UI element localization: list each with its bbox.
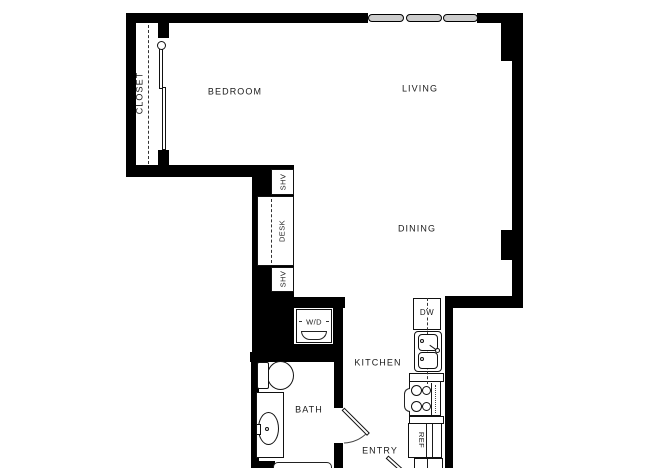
- entry-door-leaf: [386, 456, 407, 468]
- burner-front-left-icon: [411, 385, 422, 396]
- burner-back-right-icon: [422, 402, 431, 411]
- room-label-bedroom: BEDROOM: [208, 88, 262, 97]
- room-label-closet: CLOSET: [136, 72, 145, 115]
- oven-handle-icon: [404, 388, 410, 412]
- wall-kitchen-top: [445, 296, 523, 308]
- room-label-bath: BATH: [295, 406, 323, 415]
- room-label-entry: ENTRY: [362, 447, 398, 456]
- stove-panel-line: [431, 383, 432, 415]
- closet-rod-dashline: [148, 25, 149, 164]
- fridge-door-line-2: [432, 424, 433, 457]
- wall-bath-bottom-stub: [251, 461, 275, 468]
- room-label-kitchen: KITCHEN: [354, 359, 401, 368]
- cabinet-below-fridge: [414, 458, 443, 468]
- closet-slider-panel-2: [162, 87, 166, 150]
- window-segment-3: [443, 14, 478, 22]
- fridge-door-line-1: [426, 424, 427, 457]
- window-segment-2: [406, 14, 442, 22]
- desk-dashline: [271, 199, 272, 263]
- wall-bath-top: [250, 352, 343, 362]
- closet-door-knob-icon: [157, 41, 166, 50]
- burner-back-left-icon: [411, 401, 422, 412]
- room-label-living: LIVING: [402, 85, 438, 94]
- closet-door-stub-top: [158, 23, 169, 38]
- fixture-label-dishwasher: DW: [418, 309, 436, 317]
- pillar-dining: [501, 230, 513, 260]
- floor-plan: CLOSET BEDROOM LIVING DINING KITCHEN BAT…: [0, 0, 650, 468]
- burner-front-right-icon: [422, 386, 431, 395]
- fixture-label-shelf-upper: SHV: [279, 174, 287, 191]
- room-label-dining: DINING: [398, 225, 436, 234]
- vanity-faucet-icon: [256, 424, 261, 435]
- desk-box: [257, 196, 294, 266]
- fixture-label-washer-dryer: W/D: [304, 318, 324, 326]
- wall-kitchen-right: [445, 296, 453, 468]
- toilet-tank: [257, 362, 269, 389]
- stove-control-strip: [435, 385, 436, 413]
- wall-top-left: [126, 13, 368, 23]
- wall-right: [512, 23, 523, 308]
- cabinet-divider-line: [427, 459, 428, 468]
- fixture-label-desk: DESK: [278, 220, 286, 242]
- window-segment-1: [368, 14, 404, 22]
- vanity-drain-icon: [265, 427, 269, 431]
- basin-drain-1-icon: [420, 339, 424, 343]
- fixture-label-shelf-lower: SHV: [279, 271, 287, 288]
- wall-bedroom-bottom: [126, 165, 272, 177]
- bathtub: [273, 462, 332, 468]
- basin-drain-2-icon: [420, 357, 424, 361]
- closet-door-stub-bottom: [158, 150, 169, 165]
- toilet-bowl: [267, 361, 294, 390]
- fixture-label-refrigerator: REF: [417, 430, 425, 450]
